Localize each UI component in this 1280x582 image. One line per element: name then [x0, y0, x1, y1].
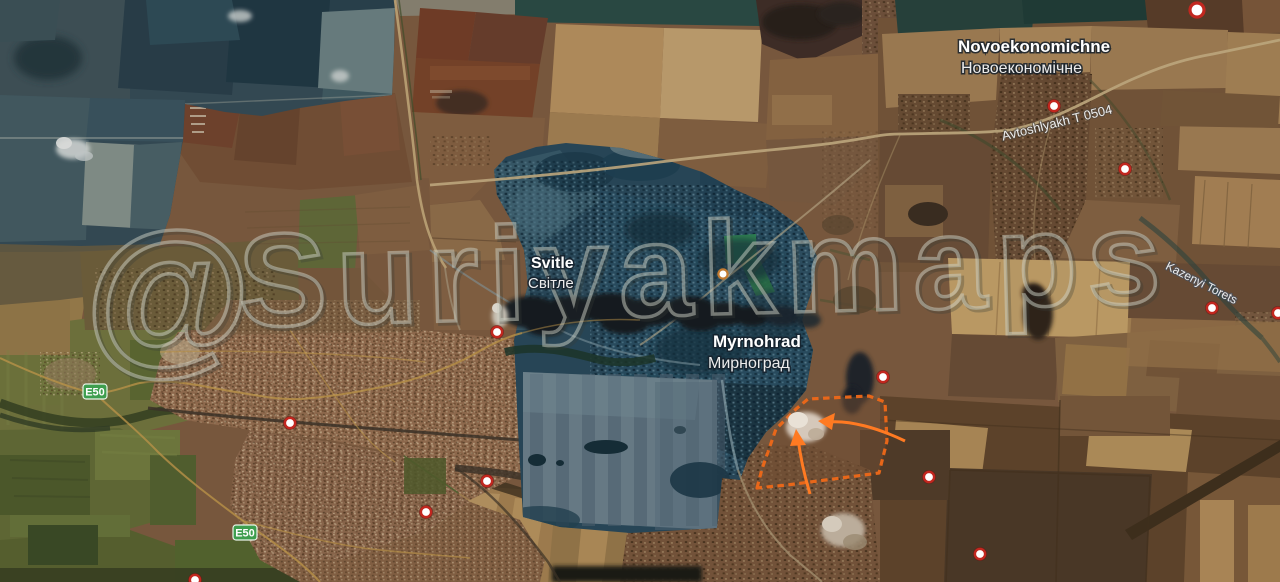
svg-text:E50: E50 — [235, 528, 255, 540]
svg-text:Мирноград: Мирноград — [708, 355, 791, 372]
svg-text:Suriyakmaps: Suriyakmaps — [237, 183, 1172, 354]
svg-text:Myrnohrad: Myrnohrad — [713, 332, 801, 351]
svg-text:Novoekonomichne: Novoekonomichne — [958, 37, 1110, 56]
svg-text:@: @ — [81, 195, 254, 391]
svg-text:Новоекономічне: Новоекономічне — [961, 60, 1082, 77]
svg-text:E50: E50 — [85, 387, 105, 399]
svg-text:Svitle: Svitle — [531, 255, 574, 272]
svg-text:Світле: Світле — [528, 275, 574, 292]
